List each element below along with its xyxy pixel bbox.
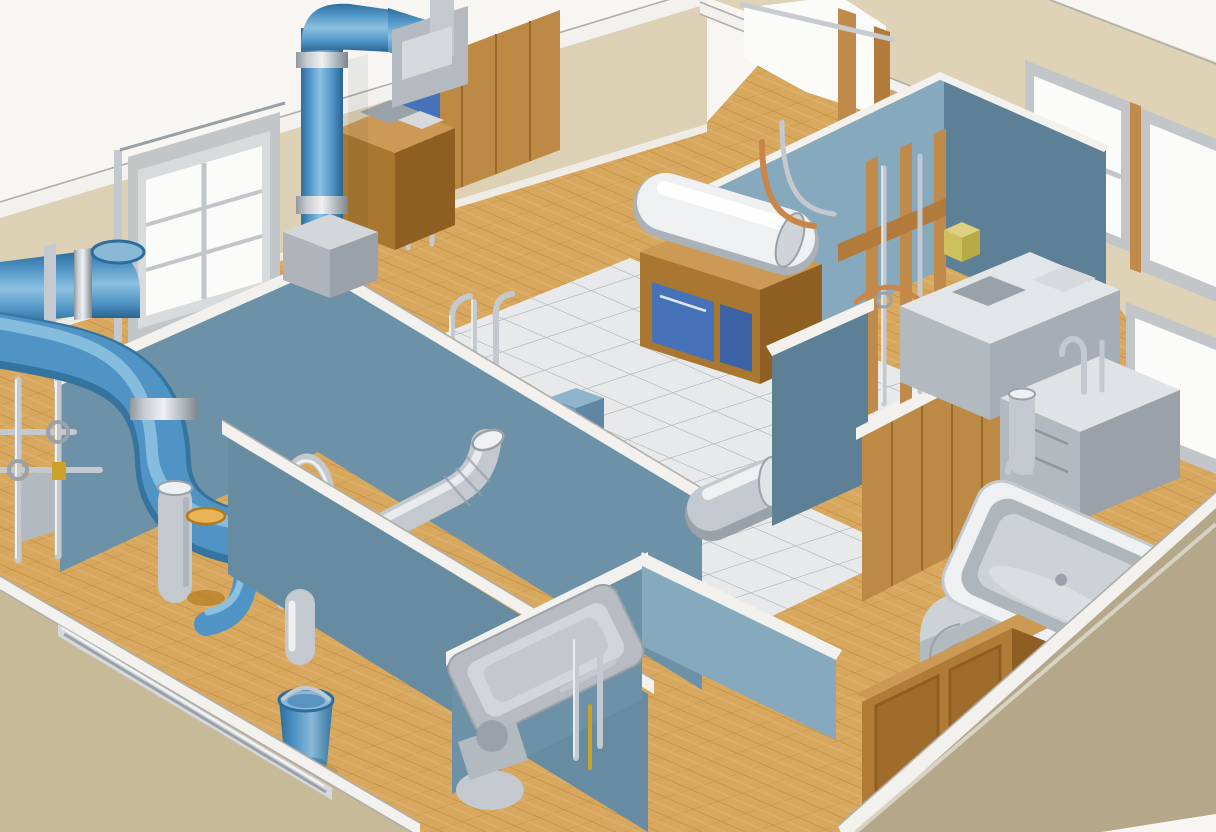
brass-tee: [52, 462, 66, 480]
flange-collar: [74, 248, 92, 320]
silver-canister: [158, 481, 192, 586]
pipe-collar: [130, 398, 198, 420]
pipe-opening: [92, 241, 144, 263]
pipe-collar: [296, 196, 348, 214]
window-glass: [1150, 124, 1216, 287]
mount-strap: [44, 244, 56, 332]
wood-window-post: [1130, 102, 1141, 273]
yellow-box: [944, 222, 980, 262]
scene-canvas: [0, 0, 1216, 832]
blue-cabinet-door: [720, 304, 752, 372]
pipe-collar: [296, 52, 348, 68]
isometric-plumbing-cutaway-render: [0, 0, 1216, 832]
orange-canister: [187, 508, 225, 606]
